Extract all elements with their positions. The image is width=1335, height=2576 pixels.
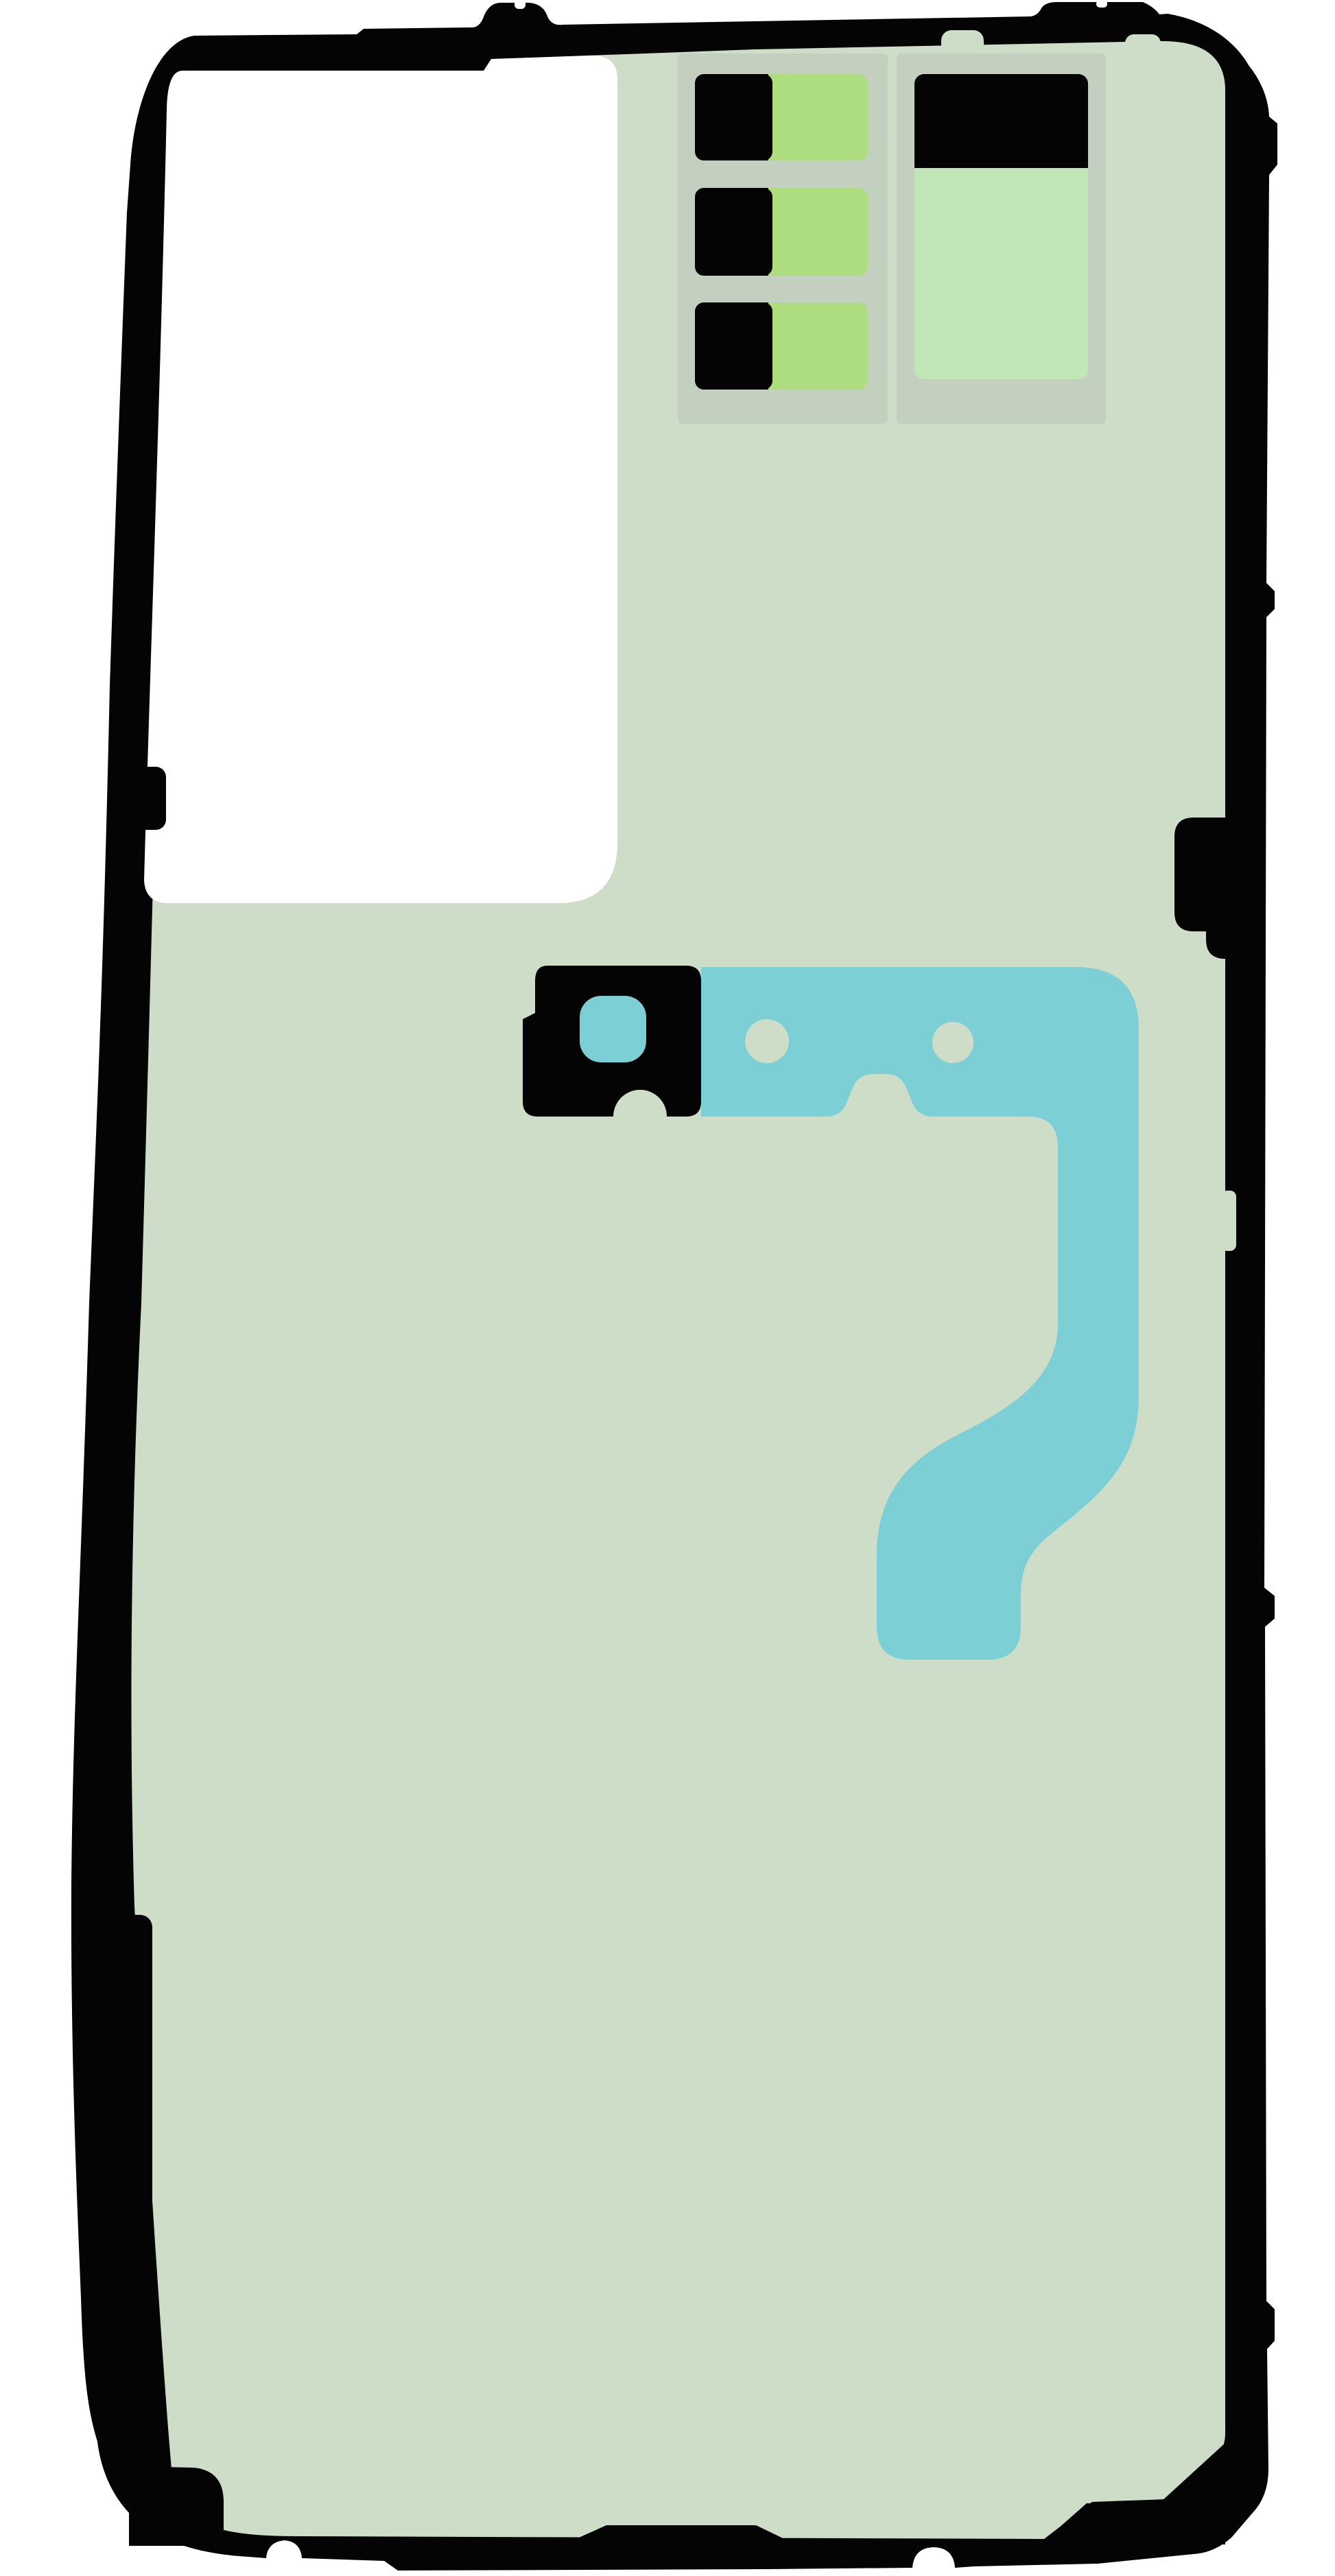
swatch-large-black-body bbox=[914, 103, 1088, 168]
liner-top-bump-right bbox=[1125, 34, 1161, 62]
liner-right-edge-bump bbox=[1221, 1191, 1236, 1251]
left-bottom-step bbox=[129, 2466, 224, 2546]
swatch-row2-black-edge bbox=[755, 188, 768, 276]
top-bump-dip-right bbox=[1096, 0, 1107, 8]
left-border-widening bbox=[122, 1915, 152, 2472]
swatch-panel-right bbox=[897, 53, 1106, 424]
teal-piece-hole-right bbox=[932, 1022, 973, 1063]
swatch-row3-black-edge bbox=[755, 302, 768, 390]
swatch-panel-left bbox=[678, 53, 888, 424]
teal-piece-hole-left bbox=[745, 1019, 789, 1063]
camera-window bbox=[144, 56, 617, 903]
top-bump-dip-left bbox=[515, 0, 525, 9]
camera-bracket-hole bbox=[580, 996, 646, 1062]
adhesive-kit-graphic bbox=[0, 0, 1335, 2576]
bottom-center-bump bbox=[567, 2525, 793, 2543]
product-image bbox=[0, 0, 1335, 2576]
swatch-row1-black-edge bbox=[755, 74, 768, 160]
left-border-inner-bump bbox=[134, 767, 166, 830]
